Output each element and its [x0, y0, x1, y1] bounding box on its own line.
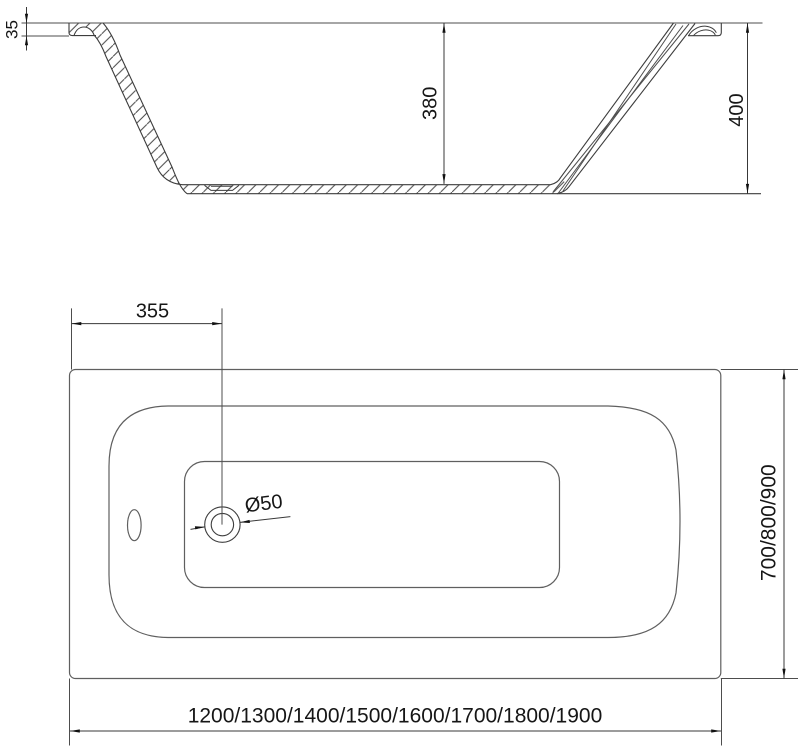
svg-text:400: 400 — [726, 93, 748, 126]
svg-text:35: 35 — [3, 20, 22, 39]
svg-text:380: 380 — [420, 87, 442, 120]
svg-text:355: 355 — [136, 300, 169, 322]
svg-text:700/800/900: 700/800/900 — [758, 464, 781, 581]
svg-text:1200/1300/1400/1500/1600/1700/: 1200/1300/1400/1500/1600/1700/1800/1900 — [188, 705, 603, 728]
